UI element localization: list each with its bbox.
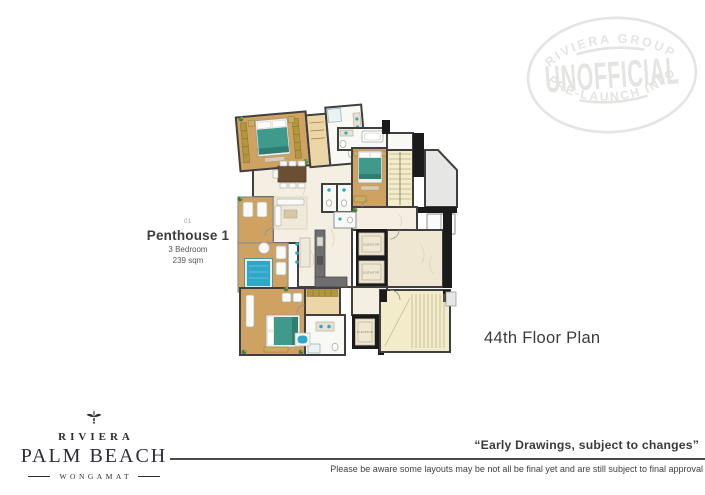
brand-title: PALM BEACH — [16, 445, 172, 468]
footer-disclaimer: Please be aware some layouts may be not … — [330, 464, 703, 474]
unit-bedrooms: 3 Bedroom — [128, 245, 248, 254]
hob — [317, 256, 323, 265]
subtitle-right-line — [138, 476, 160, 477]
footer-quote: “Early Drawings, subject to changes” — [474, 438, 699, 452]
footer-divider — [170, 458, 705, 460]
living-furniture — [274, 197, 307, 229]
brand-logo: RIVIERA PALM BEACH WONGAMAT — [16, 410, 172, 481]
outdoor-sofa — [243, 202, 253, 217]
unit-area: 239 sqm — [128, 256, 248, 265]
bedroom-2 — [352, 148, 388, 207]
brand-name: RIVIERA — [16, 431, 172, 443]
powder-rooms — [322, 184, 352, 212]
stairwell-upper — [387, 150, 413, 207]
elevator-label: ELEVATOR — [364, 242, 380, 246]
bedroom-3 — [240, 288, 310, 355]
bathroom-2 — [338, 128, 388, 150]
shower-1 — [327, 108, 341, 122]
plunge-pool — [245, 259, 273, 289]
duct-shaft — [413, 133, 424, 177]
common-area — [425, 150, 457, 207]
crown-icon — [84, 410, 104, 425]
sun-lounger — [276, 246, 286, 259]
elevator-label: ELEVATOR — [364, 270, 380, 274]
dining-table — [278, 166, 306, 182]
floor-label: 44th Floor Plan — [484, 329, 600, 348]
unit-name: Penthouse 1 — [128, 228, 248, 243]
kitchen-sink — [317, 237, 323, 246]
unit-number: 01 — [128, 219, 248, 225]
bathtub-2 — [362, 131, 383, 142]
brand-subtitle-row: WONGAMAT — [16, 472, 172, 481]
brand-subtitle: WONGAMAT — [56, 472, 132, 481]
bathtub-3 — [295, 333, 310, 346]
toilet-3 — [332, 343, 338, 351]
bathroom-3 — [305, 315, 345, 355]
walk-in-wardrobe — [307, 290, 338, 297]
round-chair — [259, 243, 270, 254]
stairwell-lower — [380, 290, 450, 352]
elevator-lobby — [387, 230, 443, 287]
watermark-stamp: RIVIERA GROUP PRE-LAUNCH INFO UNOFFICIAL — [524, 12, 700, 137]
elevator-bank: ELEVATOR ELEVATOR — [356, 229, 387, 287]
subtitle-left-line — [28, 476, 50, 477]
ac-ledge — [446, 292, 456, 306]
kitchen-island — [300, 238, 310, 267]
storage-room — [387, 133, 413, 150]
floor-plan: ELEVATOR ELEVATOR — [236, 105, 457, 355]
unit-info: 01 Penthouse 1 3 Bedroom 239 sqm — [128, 219, 248, 265]
sofa — [277, 199, 304, 205]
elevator-label: ELEVATOR — [357, 330, 373, 334]
private-elevator: ELEVATOR — [352, 315, 378, 349]
stamp-center-text: UNOFFICIAL — [543, 49, 680, 101]
foyer — [352, 207, 417, 230]
